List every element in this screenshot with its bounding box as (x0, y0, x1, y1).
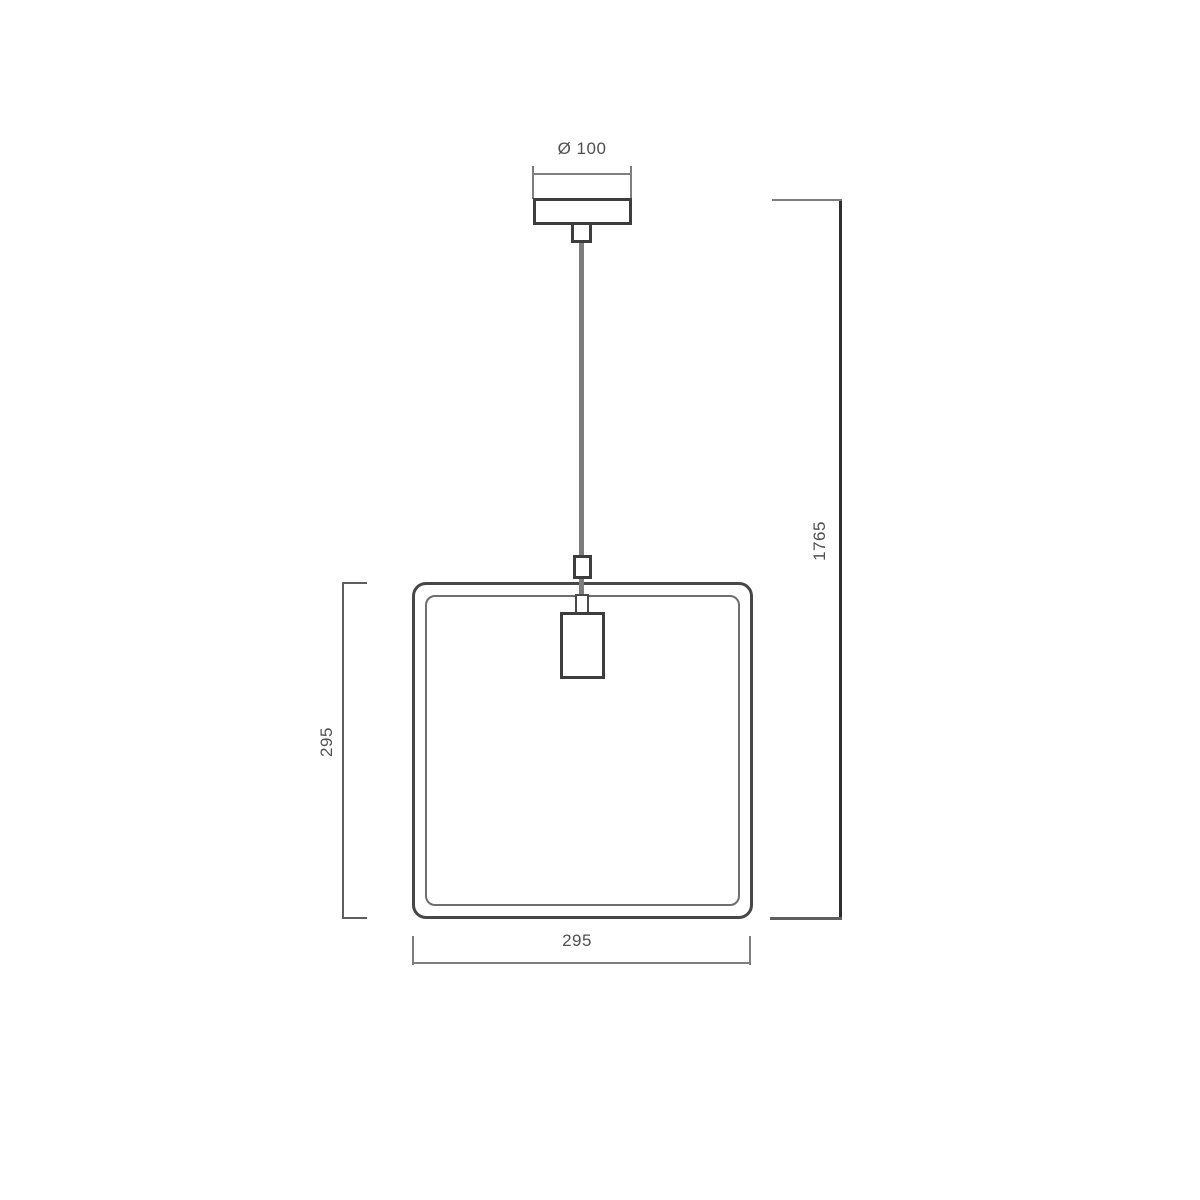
shade-height-tick-bottom (342, 917, 367, 919)
shade-width-dimension-line (412, 962, 751, 964)
canopy-diameter-tick-right (630, 166, 632, 199)
shade-width-tick-left (412, 936, 414, 965)
overall-height-tick-top (772, 199, 842, 201)
shade-height-dimension-line (342, 582, 344, 919)
overall-height-tick-bottom (770, 917, 842, 920)
suspension-cable (579, 243, 584, 559)
pendant-lamp-technical-drawing: Ø 100 295 1765 295 (0, 0, 1200, 1200)
shade-height-label: 295 (317, 702, 337, 782)
shade-width-tick-right (749, 936, 751, 965)
lamp-socket (560, 612, 605, 679)
overall-height-label: 1765 (810, 501, 830, 581)
frame-cable-connector (573, 555, 592, 579)
canopy-diameter-dimension-line (532, 173, 632, 175)
canopy-diameter-label: Ø 100 (512, 138, 652, 160)
shade-width-label: 295 (537, 931, 617, 951)
socket-neck (575, 594, 589, 614)
canopy-diameter-tick-left (532, 166, 534, 199)
canopy-cable-grip (571, 222, 592, 243)
shade-height-tick-top (342, 582, 367, 584)
overall-height-dimension-line (839, 199, 842, 919)
ceiling-canopy (533, 198, 632, 225)
